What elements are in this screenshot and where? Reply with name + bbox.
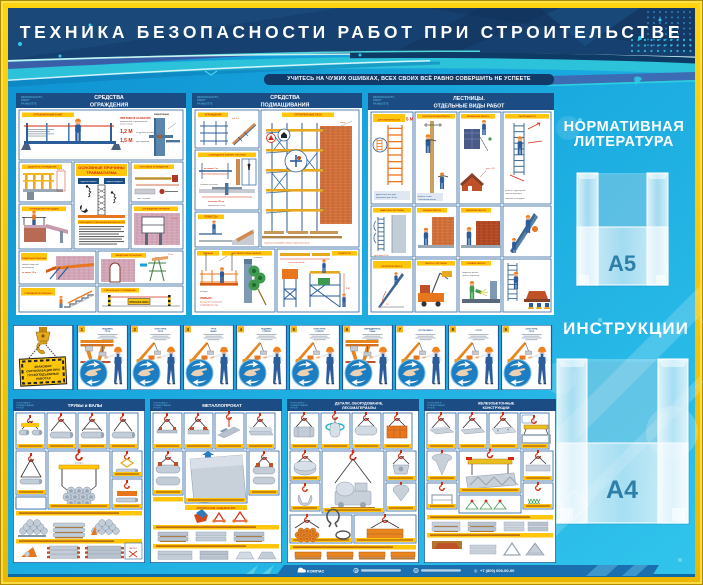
svg-text:А4: А4 [606, 476, 638, 504]
svg-text:СКЛАДИРОВАНИЕ: СКЛАДИРОВАНИЕ [290, 404, 308, 407]
svg-text:при подъёме: при подъёме [136, 141, 150, 143]
svg-text:1,2 М: 1,2 М [120, 129, 133, 135]
svg-text:по периметру: по периметру [22, 267, 34, 269]
svg-text:ОГНЕВЫЕ РАБОТЫ: ОГНЕВЫЕ РАБОТЫ [467, 262, 486, 265]
svg-text:ГРУЗ: ГРУЗ [158, 331, 164, 333]
svg-text:ТРАВМАТИЗМА: ТРАВМАТИЗМА [86, 170, 117, 175]
svg-text:ОГРАЖДЕНИЕ ЛЕСТНИЧНЫХ: ОГРАЖДЕНИЕ ЛЕСТНИЧНЫХ [24, 292, 52, 295]
svg-text:испытание статической: испытание статической [200, 301, 222, 304]
svg-text:закрепление: закрепление [154, 113, 170, 116]
svg-text:НАВЕСНЫЕ ЛЕСТНИЦЫ: НАВЕСНЫЕ ЛЕСТНИЦЫ [380, 209, 404, 212]
svg-text:h=1,1 м: h=1,1 м [232, 118, 240, 120]
svg-text:СРЕДСТВА: СРЕДСТВА [94, 95, 124, 101]
svg-text:не менее 1 м: не менее 1 м [204, 168, 218, 170]
svg-text:перекрытие стыка: перекрытие стыка [208, 205, 226, 207]
svg-text:ПРИ РАБОТЕ НА ВЫСОТЕ: ПРИ РАБОТЕ НА ВЫСОТЕ [120, 117, 151, 120]
svg-text:+7 (800) 000-00-00: +7 (800) 000-00-00 [480, 568, 515, 573]
svg-text:ПОМОСТЫ: ПОМОСТЫ [205, 216, 219, 219]
svg-text:сварочные работы: сварочные работы [462, 272, 479, 274]
svg-text:ЗАПРЕЩАЕТСЯ: ЗАПРЕЩАЕТСЯ [518, 115, 536, 118]
svg-text:КРОВЕЛЬНЫЕ РАБОТЫ: КРОВЕЛЬНЫЕ РАБОТЫ [467, 115, 490, 118]
svg-text:сбрасывать инструмент: сбрасывать инструмент [505, 198, 525, 200]
svg-text:4 м: 4 м [346, 287, 350, 290]
svg-text:работать только: работать только [418, 196, 432, 198]
svg-text:ЛЮЛЬКА: ЛЮЛЬКА [203, 252, 213, 255]
svg-text:ЛЕСОМАТЕРИАЛЫ: ЛЕСОМАТЕРИАЛЫ [342, 406, 376, 410]
svg-text:75°: 75° [386, 304, 389, 306]
svg-text:падение предмета: падение предмета [106, 181, 123, 183]
svg-text:ГРУЗОВ: ГРУЗОВ [427, 408, 435, 410]
svg-text:СКЛАДИРОВАНИЕ: СКЛАДИРОВАНИЕ [153, 404, 171, 407]
svg-text:дуги через 0,8 м: дуги через 0,8 м [374, 255, 389, 257]
svg-text:МЕТАЛЛОПРОКАТ: МЕТАЛЛОПРОКАТ [202, 403, 242, 408]
svg-text:ПОДМОСТИ: ПОДМОСТИ [338, 253, 351, 255]
svg-text:ловитель: ловитель [254, 257, 263, 259]
svg-text:угол > 20°: угол > 20° [486, 167, 495, 170]
svg-text:ЗАПРЕТ: ЗАПРЕТ [129, 547, 138, 550]
svg-text:трос стальной: трос стальной [137, 197, 150, 200]
svg-text:СТРЕЛУ: СТРЕЛУ [315, 331, 324, 333]
svg-text:ОГРАЖДЕНИЕ: ОГРАЖДЕНИЕ [205, 114, 222, 117]
svg-text:козырёк защитный: козырёк защитный [22, 263, 38, 266]
svg-text:канат и пояс: канат и пояс [120, 124, 134, 126]
svg-text:ЭЛЕКТРОМОНТАЖНЫЕ РАБОТЫ: ЭЛЕКТРОМОНТАЖНЫЕ РАБОТЫ [422, 115, 450, 118]
svg-text:ОГРАЖДЕНИЯ: ОГРАЖДЕНИЯ [90, 103, 128, 109]
svg-text:ЗАЩИТНЫЕ КОЗЫРЬКИ: ЗАЩИТНЫЕ КОЗЫРЬКИ [115, 254, 142, 257]
svg-text:РАБОТАХ: РАБОТАХ [36, 376, 52, 381]
svg-text:СТРОИТЕЛЬНЫЕ ЛЕСА: СТРОИТЕЛЬНЫЕ ЛЕСА [294, 114, 322, 117]
svg-text:от уровня настила: от уровня настила [136, 132, 155, 134]
svg-text:СОБЛЮДАЙТЕ ТРЕБОВАНИЯ БЕЗОПАСН: СОБЛЮДАЙТЕ ТРЕБОВАНИЯ БЕЗОПАСНОСТИ [78, 221, 125, 224]
svg-text:КОНСТРУКЦИИ: КОНСТРУКЦИИ [483, 406, 510, 410]
svg-text:только с подмостей: только с подмостей [462, 274, 479, 277]
svg-text:СИГНАЛЬНОЕ ОГРАЖДЕНИЕ: СИГНАЛЬНОЕ ОГРАЖДЕНИЕ [104, 289, 136, 292]
svg-text:ступенек запрещено: ступенек запрещено [505, 193, 522, 195]
svg-text:КОМПАС: КОМПАС [307, 569, 325, 574]
svg-text:тщательно проверяйте опоры и к: тщательно проверяйте опоры и крепления л… [264, 242, 310, 245]
svg-text:РАБОТЫ С ЛЕСТНИЦЫ: РАБОТЫ С ЛЕСТНИЦЫ [425, 262, 447, 265]
svg-text:ГРУЗОВ: ГРУЗОВ [16, 408, 24, 410]
svg-text:@: @ [355, 569, 359, 573]
svg-text:работать с двух верхних: работать с двух верхних [505, 190, 525, 192]
svg-text:анкер: анкер [340, 122, 346, 124]
svg-text:НЕ ПЕРЕГРУЖАЙ ЛЮЛЬКУ: НЕ ПЕРЕГРУЖАЙ ЛЮЛЬКУ [233, 252, 263, 255]
svg-text:не менее 20 см: не менее 20 см [208, 201, 225, 203]
svg-text:падение человека: падение человека [80, 181, 97, 183]
svg-text:СКЛАДИРОВАНИЕ: СКЛАДИРОВАНИЕ [427, 404, 445, 407]
svg-text:СРЕДСТВА: СРЕДСТВА [270, 95, 300, 101]
svg-text:h=1,1 м: h=1,1 м [57, 169, 65, 171]
svg-text:1,1 м: 1,1 м [172, 218, 177, 220]
svg-text:ЛЕСТНИЦЫ.: ЛЕСТНИЦЫ. [453, 96, 485, 102]
svg-text:ПОДМАЩИВАНИЯ: ПОДМАЩИВАНИЯ [261, 103, 310, 109]
svg-text:СТРАХОВОЧНЫЙ КАНАТ: СТРАХОВОЧНЫЙ КАНАТ [33, 114, 63, 117]
svg-text:СТРЕЛУ: СТРЕЛУ [262, 331, 271, 333]
svg-text:ГРУЗОВ: ГРУЗОВ [290, 408, 298, 410]
svg-text:НА ВЫСОТЕ: НА ВЫСОТЕ [373, 101, 389, 105]
svg-text:ОТДЕЛЬНЫЕ ВИДЫ РАБОТ: ОТДЕЛЬНЫЕ ВИДЫ РАБОТ [434, 104, 506, 110]
svg-text:испытывать раз в 6 мес.: испытывать раз в 6 мес. [376, 197, 398, 199]
svg-text:НА ВЫСОТЕ: НА ВЫСОТЕ [197, 101, 213, 105]
svg-text:с монтажным поясом: с монтажным поясом [418, 199, 437, 201]
svg-text:КАМЕННЫЕ РАБОТЫ: КАМЕННЫЕ РАБОТЫ [466, 209, 486, 212]
svg-text:лебёдка: лебёдка [200, 291, 209, 293]
svg-text:ОГРАЖДЕНИЕ ПРОЕМОВ: ОГРАЖДЕНИЕ ПРОЕМОВ [142, 208, 170, 211]
svg-text:ЗАЩИТНЫЕ КОЗЫРЬКИ: ЗАЩИТНЫЕ КОЗЫРЬКИ [22, 257, 47, 260]
svg-text:ОГРАЖДЕНИЕ ПЛОЩАДКИ: ОГРАЖДЕНИЕ ПЛОЩАДКИ [29, 208, 59, 211]
svg-text:СТРОПОВКА И: СТРОПОВКА И [153, 401, 168, 404]
svg-text:А5: А5 [608, 251, 636, 276]
svg-text:ЗАЩИТНОЕ ОГРАЖДЕНИЕ: ЗАЩИТНОЕ ОГРАЖДЕНИЕ [28, 166, 57, 169]
svg-text:ВНИЗ: ВНИЗ [210, 331, 217, 333]
svg-text:ИСКЛЮЧЕНИЕ ЗАЩЕМЛЕНИЯ: ИСКЛЮЧЕНИЕ ЗАЩЕМЛЕНИЯ [197, 506, 236, 510]
svg-text:применяйте страховочный: применяйте страховочный [120, 120, 148, 123]
svg-text:ЛЮЛЬКА:: ЛЮЛЬКА: [200, 296, 213, 300]
svg-text:настил сплошной: настил сплошной [288, 261, 304, 264]
svg-text:траверса: траверса [75, 463, 84, 465]
svg-text:СТРОПОВКА И: СТРОПОВКА И [427, 401, 442, 404]
svg-text:ГРУЗОВ: ГРУЗОВ [153, 408, 161, 410]
svg-text:СТРОПОВКА И: СТРОПОВКА И [290, 401, 305, 404]
svg-text:ГРУЗ: ГРУЗ [529, 331, 535, 333]
svg-text:ГРУЗ: ГРУЗ [105, 331, 111, 333]
svg-text:ТРОСОВОЕ ОГРАЖДЕНИЕ: ТРОСОВОЕ ОГРАЖДЕНИЕ [140, 166, 169, 169]
svg-text:ТРУБЫ и ВАЛЫ: ТРУБЫ и ВАЛЫ [68, 403, 102, 408]
svg-text:1,5 М: 1,5 М [120, 138, 133, 144]
svg-text:НИЖНИЕ РАБОТЫ: НИЖНИЕ РАБОТЫ [423, 209, 441, 212]
svg-text:не менее 1,5 м: не менее 1,5 м [22, 272, 37, 274]
svg-text:деревянные лестницы: деревянные лестницы [376, 194, 396, 196]
svg-text:ОСТОРОЖНО: ОСТОРОЖНО [418, 330, 433, 332]
svg-text:НА ВЫСОТЕ: НА ВЫСОТЕ [21, 101, 37, 105]
svg-text:нагрузкой раз в год: нагрузкой раз в год [200, 304, 219, 307]
svg-text:МЕТАЛЛИЧЕСКИЕ 5 М: МЕТАЛЛИЧЕСКИЕ 5 М [382, 265, 403, 268]
svg-text:ДОПУСКАЕМАЯ ВЫСОТА: ДОПУСКАЕМАЯ ВЫСОТА [378, 119, 401, 122]
svg-text:СТРОПОВКА И: СТРОПОВКА И [16, 401, 31, 404]
svg-text:2,5 м: 2,5 м [168, 254, 173, 256]
svg-text:СКЛАДИРОВАНИЕ: СКЛАДИРОВАНИЕ [16, 404, 34, 407]
svg-text:СОБЛЮДАЙТЕ ШИРИНУ НАСТИЛА: СОБЛЮДАЙТЕ ШИРИНУ НАСТИЛА [208, 154, 246, 157]
svg-text:5 М: 5 М [406, 117, 414, 122]
svg-text:СТОП: СТОП [475, 330, 482, 332]
svg-text:ОПАСНАЯ ЗОНА: ОПАСНАЯ ЗОНА [129, 301, 149, 304]
svg-text:КРАН: КРАН [370, 330, 376, 333]
svg-text:стыковка настилов: стыковка настилов [200, 184, 218, 186]
